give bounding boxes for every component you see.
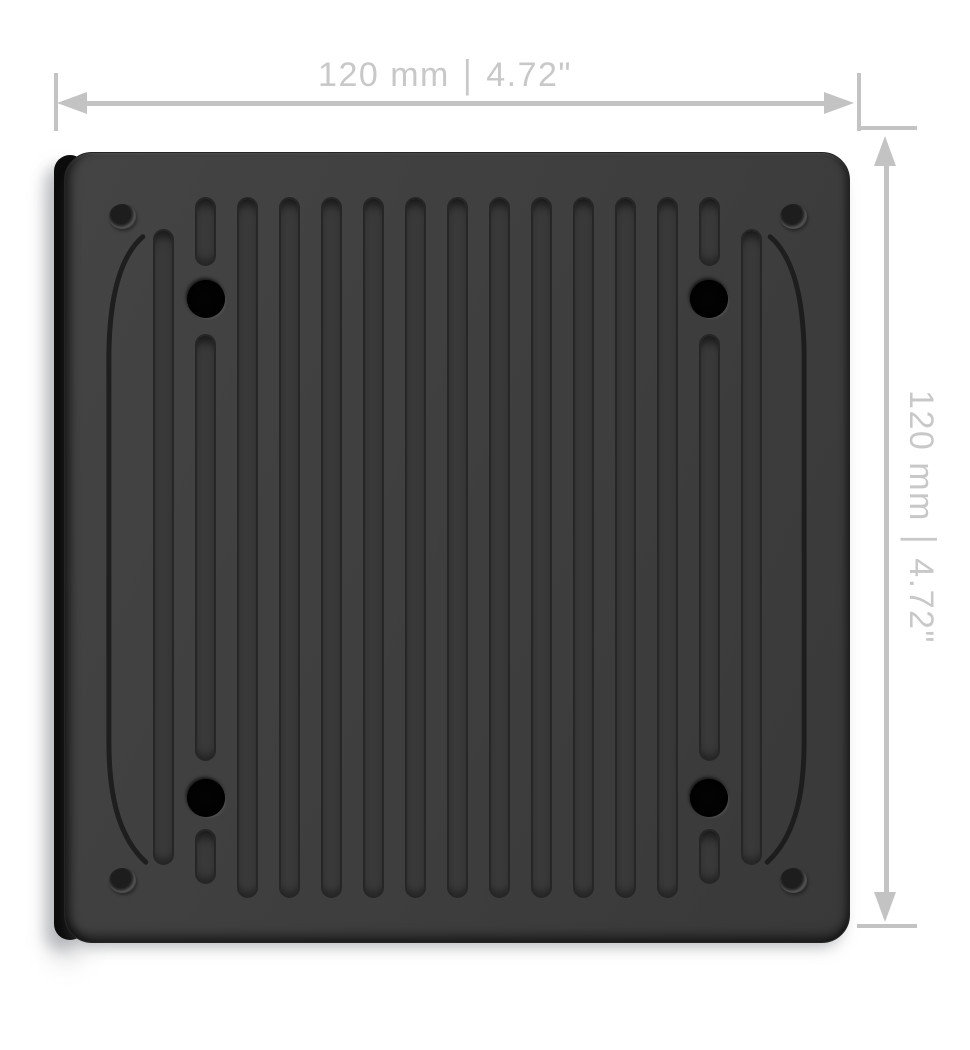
screw-hole	[690, 280, 728, 318]
vent-slot	[489, 197, 510, 898]
width-separator: |	[463, 55, 473, 94]
vent-slot	[699, 197, 720, 266]
fan-plate	[64, 152, 850, 943]
arrow-up-icon	[874, 136, 896, 166]
vent-slot	[531, 197, 552, 898]
vent-slot	[615, 197, 636, 898]
height-dimension-label: 120 mm|4.72"	[904, 390, 938, 644]
screw-hole	[187, 779, 225, 817]
arrow-right-icon	[824, 92, 854, 114]
screw-hole	[690, 779, 728, 817]
vent-slot	[741, 229, 762, 865]
corner-hole	[109, 868, 136, 893]
vent-slot	[699, 334, 720, 761]
corner-hole	[780, 204, 807, 229]
screw-hole	[187, 280, 225, 318]
width-dimension-line	[84, 101, 828, 106]
vent-slot	[321, 197, 342, 898]
vent-slot	[363, 197, 384, 898]
height-mm-value: 120 mm	[902, 390, 940, 522]
vent-slot	[195, 197, 216, 266]
vent-slot	[153, 229, 174, 865]
arrow-down-icon	[874, 892, 896, 922]
vent-slot	[447, 197, 468, 898]
width-inch-value: 4.72"	[486, 56, 572, 94]
corner-hole	[109, 204, 136, 229]
vent-slot	[657, 197, 678, 898]
height-dimension-line	[884, 162, 889, 894]
vent-slot	[573, 197, 594, 898]
vent-slot	[699, 829, 720, 884]
width-mm-value: 120 mm	[318, 56, 450, 94]
width-dimension-label: 120 mm|4.72"	[318, 58, 572, 92]
height-extension-line-bottom	[857, 924, 917, 928]
arrow-left-icon	[57, 92, 87, 114]
vent-slot	[237, 197, 258, 898]
vent-slot	[279, 197, 300, 898]
dimension-diagram: 120 mm|4.72" 120 mm|4.72"	[0, 0, 970, 1050]
vent-slot	[405, 197, 426, 898]
vent-slot	[195, 334, 216, 761]
fan-arc-left	[109, 237, 146, 862]
width-extension-line-right	[857, 73, 861, 131]
vent-slot	[195, 829, 216, 884]
fan-arc-right	[767, 237, 804, 862]
height-extension-line-top	[857, 126, 917, 130]
corner-hole	[780, 868, 807, 893]
height-separator: |	[901, 535, 940, 545]
height-inch-value: 4.72"	[902, 558, 940, 644]
